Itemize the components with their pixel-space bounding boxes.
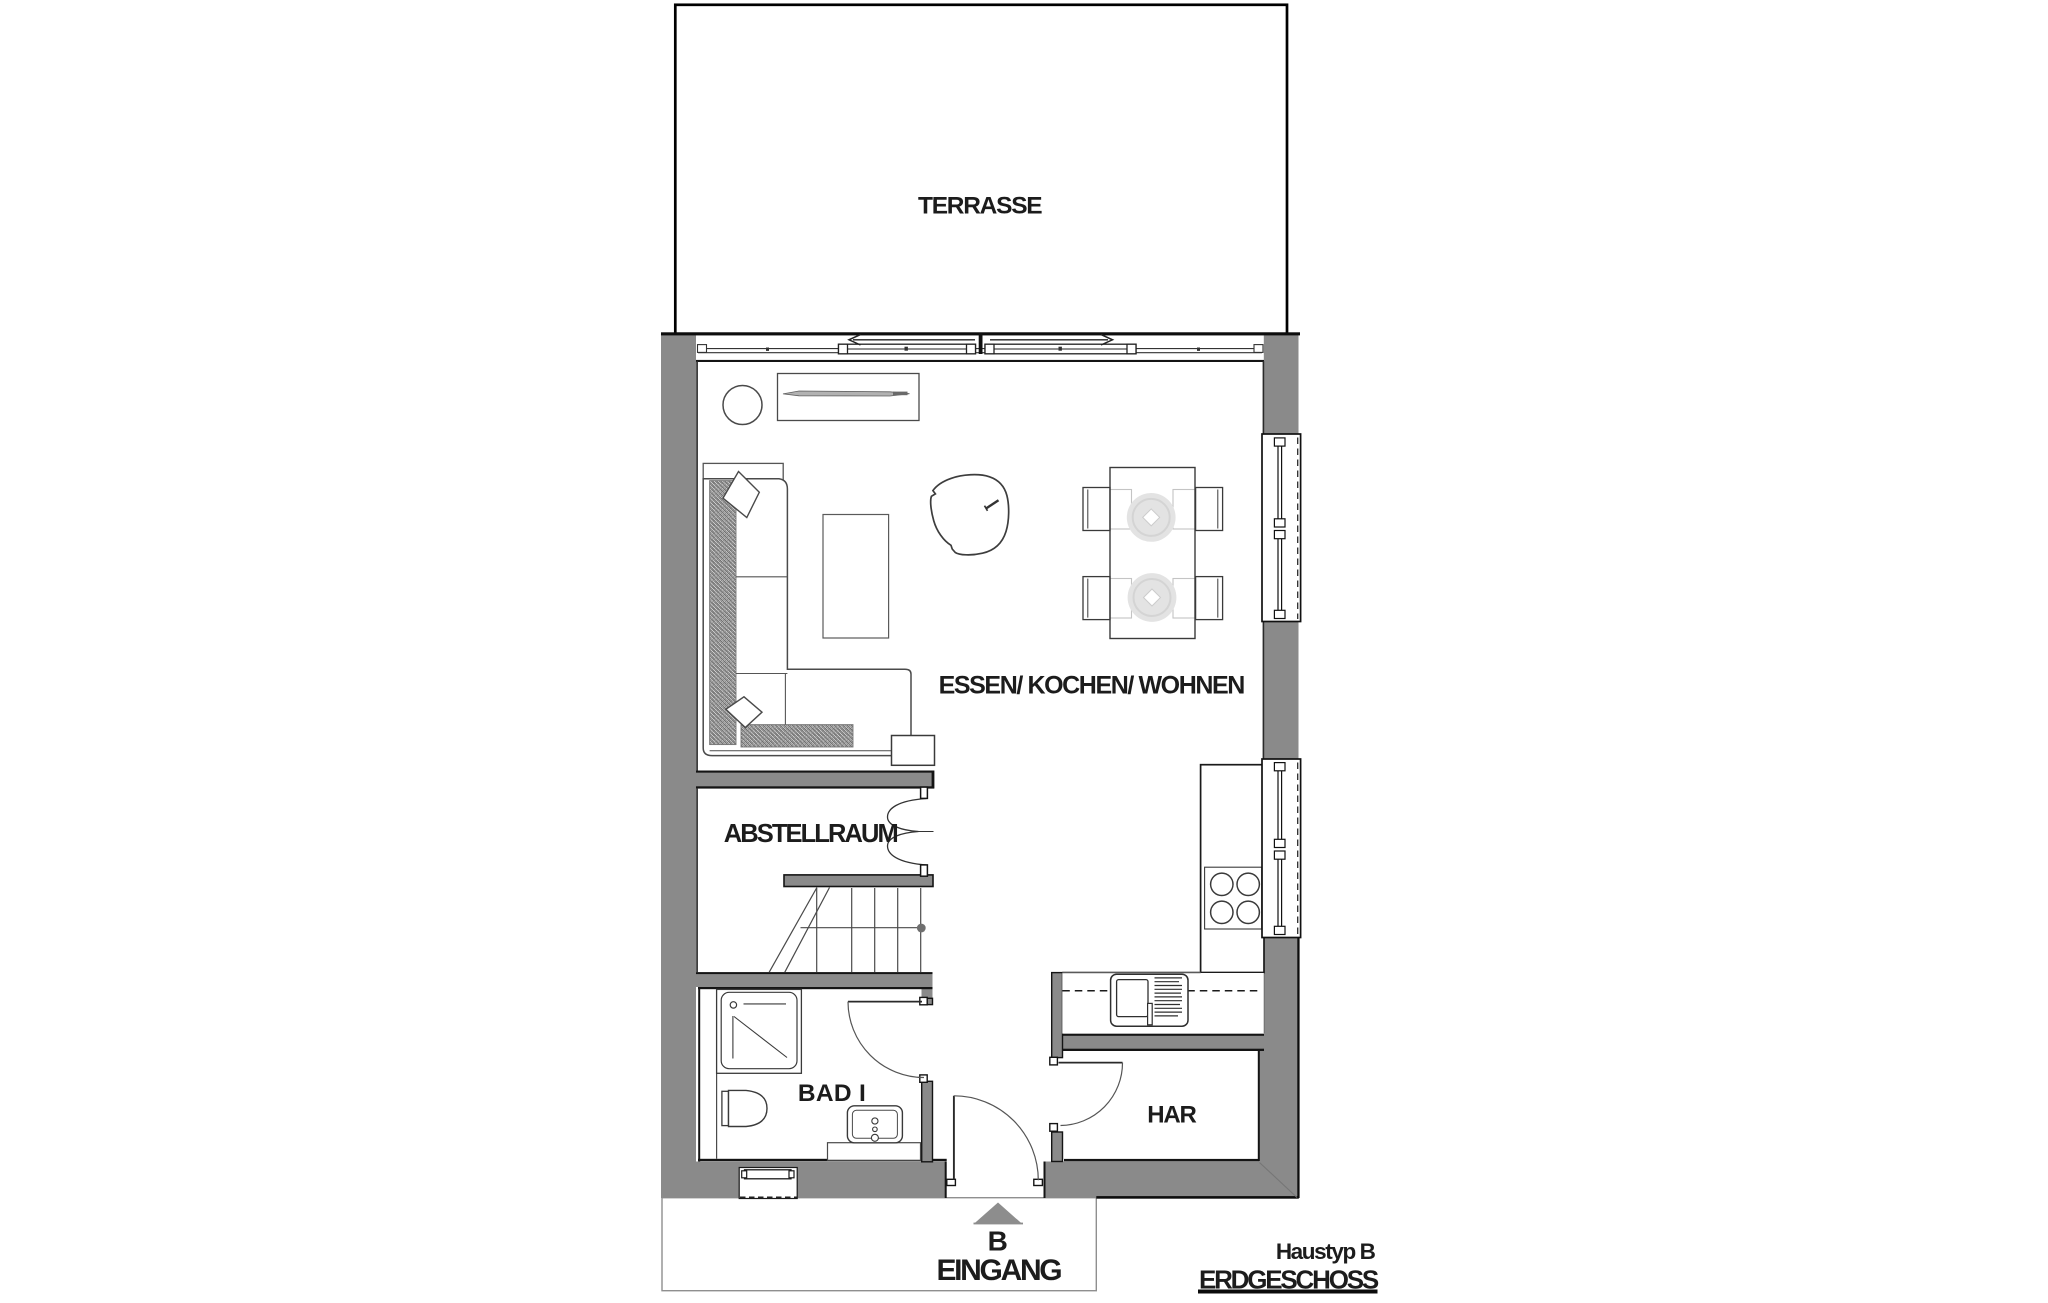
svg-text:TERRASSE: TERRASSE xyxy=(918,193,1042,220)
svg-text:ABSTELLRAUM: ABSTELLRAUM xyxy=(724,820,898,848)
svg-text:HAR: HAR xyxy=(1147,1102,1196,1129)
svg-text:B: B xyxy=(988,1226,1008,1257)
svg-text:BAD I: BAD I xyxy=(798,1080,866,1107)
svg-text:ESSEN/ KOCHEN/ WOHNEN: ESSEN/ KOCHEN/ WOHNEN xyxy=(939,672,1245,700)
svg-text:Haustyp B: Haustyp B xyxy=(1276,1239,1376,1264)
svg-text:EINGANG: EINGANG xyxy=(936,1254,1061,1287)
